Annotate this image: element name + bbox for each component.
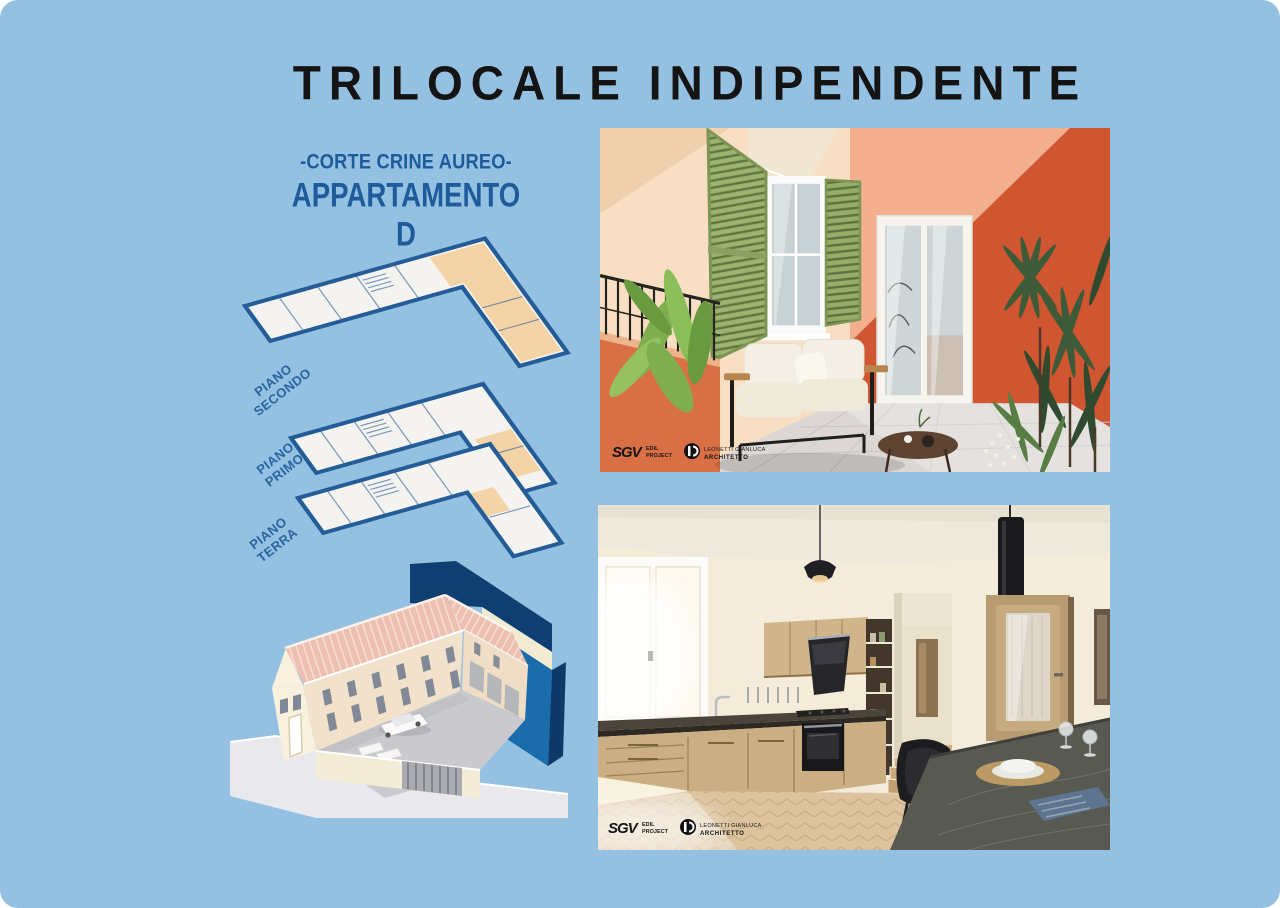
sgv-logo: SGV: [612, 444, 644, 461]
sgv-logo: SGV: [608, 820, 640, 837]
pendant-light-large: [998, 505, 1024, 604]
page-title: TRILOCALE INDIPENDENTE: [100, 55, 1280, 111]
svg-text:PROJECT: PROJECT: [642, 829, 669, 835]
svg-text:ARCHITETTO: ARCHITETTO: [704, 455, 749, 461]
bowl: [1000, 759, 1036, 773]
range-hood: [808, 635, 850, 695]
kitchen-window: [598, 557, 708, 737]
svg-text:EDIL: EDIL: [642, 822, 655, 828]
svg-text:PROJECT: PROJECT: [646, 453, 673, 459]
french-door: [877, 216, 972, 413]
oven: [802, 723, 844, 771]
svg-text:LEONETTI GIANLUCA: LEONETTI GIANLUCA: [704, 447, 766, 453]
building-axonometric: [230, 560, 570, 820]
left-shutter: [708, 130, 766, 361]
svg-text:LEONETTI GIANLUCA: LEONETTI GIANLUCA: [700, 823, 762, 829]
interior-door: [986, 595, 1074, 741]
kitchen-rendering: SGV EDIL PROJECT LEONETTI GIANLUCA ARCHI…: [598, 505, 1110, 850]
svg-text:EDIL: EDIL: [646, 446, 659, 452]
svg-text:ARCHITETTO: ARCHITETTO: [700, 831, 745, 837]
court-name: -CORTE CRINE AUREO-: [281, 151, 531, 176]
window: [762, 176, 830, 341]
brochure-page: TRILOCALE INDIPENDENTE -CORTE CRINE AURE…: [0, 0, 1280, 908]
terrace-rendering: SGV EDIL PROJECT LEONETTI GIANLUCA ARCHI…: [600, 128, 1110, 472]
right-shutter: [826, 180, 860, 326]
